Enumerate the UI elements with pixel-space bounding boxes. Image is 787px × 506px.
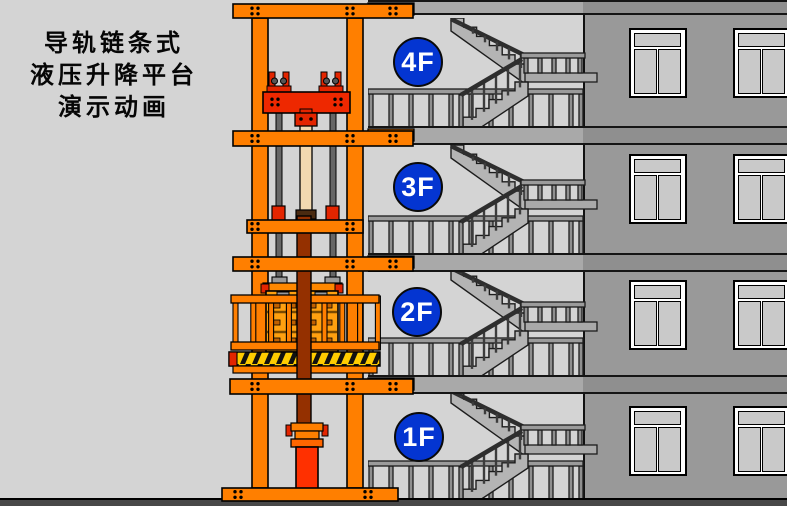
bolt — [256, 222, 259, 225]
window — [733, 28, 787, 98]
landing-railing — [521, 180, 585, 185]
sprocket-wheel — [272, 78, 278, 84]
cargo-latch — [307, 320, 316, 325]
mast-right-column — [347, 18, 363, 488]
stair-end-post — [459, 344, 463, 377]
window-pane-left — [738, 427, 761, 472]
cargo-clamp — [261, 284, 269, 293]
cylinder-flange — [291, 439, 323, 447]
carriage-assembly — [263, 72, 350, 126]
chain-anchor — [272, 206, 285, 222]
corridor-railing — [368, 461, 583, 466]
bolt — [333, 98, 336, 101]
sprocket-bracket — [321, 72, 327, 87]
window-transom — [634, 285, 681, 299]
mast-left-column — [252, 18, 268, 488]
bolt — [250, 265, 253, 268]
stair-landing — [525, 200, 597, 209]
landing-railing-post — [524, 430, 528, 445]
window-transom — [738, 411, 785, 425]
bolt — [345, 134, 348, 137]
cargo-latch — [271, 338, 280, 343]
landing-railing-post — [552, 307, 556, 322]
chain-block — [272, 277, 287, 289]
bolt — [250, 260, 253, 263]
cargo-latch — [287, 338, 296, 343]
corridor-railing — [368, 89, 583, 94]
corridor-railing-post — [569, 343, 573, 377]
cylinder-pin — [322, 425, 328, 436]
window-transom — [634, 159, 681, 173]
floor-slab-inner — [368, 377, 583, 392]
corridor-railing-post — [409, 343, 413, 377]
bolt — [270, 98, 273, 101]
corridor-railing-post — [529, 343, 533, 377]
chain-left — [276, 86, 282, 292]
bolt — [256, 134, 259, 137]
window-pane-left — [738, 175, 761, 220]
bolt — [256, 382, 259, 385]
platform-underside — [233, 366, 377, 373]
corridor-railing-post — [579, 94, 583, 128]
stair-landing — [525, 73, 597, 82]
bolt — [351, 260, 354, 263]
platform-assembly — [229, 277, 380, 373]
bolt — [256, 260, 259, 263]
landing-railing — [521, 53, 585, 58]
piston-rod — [300, 118, 312, 214]
carriage-beam — [263, 92, 350, 113]
corridor-railing-post — [429, 466, 433, 500]
window-pane-right — [762, 301, 785, 346]
floor-label-text: 1F — [402, 422, 436, 453]
bolt — [250, 222, 253, 225]
landing-railing-post — [566, 185, 570, 200]
cage-post — [251, 296, 256, 350]
window-pane-left — [738, 301, 761, 346]
chain-right — [330, 86, 336, 292]
window-pane-left — [634, 427, 657, 472]
cage-post — [304, 296, 309, 350]
cage-post — [269, 296, 274, 350]
bolt — [309, 117, 313, 121]
corridor-railing — [368, 338, 583, 343]
landing-railing-post — [566, 58, 570, 73]
cargo-bracket — [277, 292, 289, 300]
window-pane-left — [738, 49, 761, 94]
floor-slab-wall-band — [583, 377, 787, 392]
landing-railing-post — [524, 185, 528, 200]
window-pane-right — [658, 49, 681, 94]
bolt — [250, 7, 253, 10]
corridor-railing-post — [369, 466, 373, 500]
bolt — [345, 7, 348, 10]
floor-label-4f: 4F — [393, 37, 443, 87]
floor-label-text: 4F — [401, 47, 435, 78]
corridor-railing-post — [529, 94, 533, 128]
bolt — [345, 222, 348, 225]
bolt — [250, 134, 253, 137]
window — [629, 154, 687, 224]
bolt — [256, 388, 259, 391]
corridor-railing-post — [409, 221, 413, 255]
sprocket-bracket — [283, 72, 289, 87]
corridor-railing-post — [389, 94, 393, 128]
floor-slab-inner — [368, 128, 583, 143]
landing-railing-post — [552, 58, 556, 73]
bolt — [239, 490, 242, 493]
floor-slab — [368, 126, 787, 145]
floor-label-1f: 1F — [394, 412, 444, 462]
bolt — [351, 382, 354, 385]
cargo-latch — [323, 338, 332, 343]
title-line: 液压升降平台 — [8, 60, 220, 92]
sprocket-bracket — [269, 72, 275, 87]
landing-railing-post — [552, 430, 556, 445]
window-pane-right — [658, 427, 681, 472]
window-pane-right — [762, 175, 785, 220]
bolt — [351, 134, 354, 137]
corridor-railing-post — [369, 343, 373, 377]
cargo-clamp — [335, 284, 343, 293]
bolt — [339, 103, 342, 106]
cargo-latch — [271, 303, 280, 308]
hazard-stripe-deck — [229, 352, 380, 366]
cargo-latch — [307, 303, 316, 308]
cage-top-rail — [231, 295, 379, 303]
rod-clevis — [295, 113, 317, 126]
cylinder-base — [286, 423, 328, 492]
window-transom — [634, 33, 681, 47]
bolt — [345, 382, 348, 385]
deck-end-cap — [229, 352, 237, 366]
bolt — [351, 388, 354, 391]
floor-slab-wall-band — [583, 255, 787, 270]
corridor-railing-post — [409, 94, 413, 128]
cylinder-barrel — [297, 216, 311, 428]
corridor-railing-post — [449, 466, 453, 500]
bolt — [333, 103, 336, 106]
bolt — [256, 265, 259, 268]
cargo-latch — [307, 338, 316, 343]
corridor-railing-post — [389, 221, 393, 255]
cylinder-pin — [286, 425, 292, 436]
floor-label-2f: 2F — [392, 287, 442, 337]
window-pane-right — [658, 301, 681, 346]
carriage-anchor-beam — [247, 220, 363, 233]
corridor-railing-post — [579, 221, 583, 255]
window-transom — [738, 159, 785, 173]
animation-canvas: 导轨链条式 液压升降平台 演示动画 4F3F2F1F — [0, 0, 787, 506]
sprocket-wheel — [333, 78, 339, 84]
corridor-railing — [368, 216, 583, 221]
cylinder-body — [296, 447, 318, 492]
window-pane-left — [634, 49, 657, 94]
corridor-railing-post — [549, 94, 553, 128]
corridor-railing-post — [409, 466, 413, 500]
bolt — [351, 265, 354, 268]
cargo-load — [266, 291, 338, 352]
window — [733, 154, 787, 224]
window — [733, 406, 787, 476]
rod-cap — [300, 109, 312, 114]
window-transom — [738, 33, 785, 47]
cargo-latch — [287, 303, 296, 308]
landing-railing-post — [538, 307, 542, 322]
landing-railing-post — [524, 307, 528, 322]
window — [629, 280, 687, 350]
sprocket-bracket — [335, 72, 341, 87]
stair-landing — [525, 322, 597, 331]
landing-railing-post — [538, 58, 542, 73]
bolt — [345, 388, 348, 391]
window-pane-right — [762, 427, 785, 472]
stair-end-post — [459, 467, 463, 500]
landing-railing-post — [578, 430, 582, 445]
corridor-railing-post — [529, 221, 533, 255]
landing-railing — [521, 425, 585, 430]
corridor-railing-post — [369, 221, 373, 255]
bolt — [256, 140, 259, 143]
corridor-railing-post — [389, 343, 393, 377]
landing-railing-post — [538, 185, 542, 200]
rod-collar — [296, 210, 316, 219]
window-pane-right — [762, 49, 785, 94]
bolt — [250, 382, 253, 385]
landing-railing-post — [552, 185, 556, 200]
corridor-railing-post — [579, 343, 583, 377]
bolt — [256, 12, 259, 15]
sprocket-base — [319, 86, 343, 92]
stair-end-post — [459, 222, 463, 255]
floor-slab-wall-band — [583, 128, 787, 143]
bolt — [233, 490, 236, 493]
bolt — [299, 117, 303, 121]
bolt — [363, 490, 366, 493]
bolt — [351, 12, 354, 15]
cargo-latch — [271, 320, 280, 325]
bolt — [351, 7, 354, 10]
corridor-railing-post — [449, 94, 453, 128]
corridor-railing-post — [569, 466, 573, 500]
cage-bottom-rail — [231, 342, 379, 350]
floor-label-text: 3F — [401, 172, 435, 203]
bolt — [256, 228, 259, 231]
landing-railing-post — [538, 430, 542, 445]
ground — [0, 498, 787, 506]
sprocket-wheel — [281, 78, 287, 84]
bolt — [256, 7, 259, 10]
landing-railing-post — [566, 430, 570, 445]
corridor-railing-post — [389, 466, 393, 500]
bolt — [351, 228, 354, 231]
bolt — [270, 103, 273, 106]
cage-post — [233, 296, 238, 350]
window-pane-left — [634, 175, 657, 220]
stair-end-post — [459, 95, 463, 128]
cylinder-clamp — [291, 423, 323, 431]
corridor-railing-post — [449, 221, 453, 255]
bolt — [351, 222, 354, 225]
corridor-railing-post — [549, 343, 553, 377]
cargo-top-bar — [263, 283, 342, 291]
bolt — [250, 228, 253, 231]
cage-post — [358, 296, 363, 350]
chain-block — [325, 277, 340, 289]
bolt — [339, 98, 342, 101]
cage-post — [286, 296, 291, 350]
bolt — [345, 228, 348, 231]
cage-post — [322, 296, 327, 350]
corridor-railing-post — [569, 94, 573, 128]
floor-label-text: 2F — [400, 297, 434, 328]
title-line: 导轨链条式 — [8, 28, 220, 60]
cage-post — [340, 296, 345, 350]
sprocket-wheel — [324, 78, 330, 84]
title-text: 导轨链条式 液压升降平台 演示动画 — [8, 28, 220, 124]
corridor-railing-post — [529, 466, 533, 500]
window-pane-left — [634, 301, 657, 346]
corridor-railing-post — [429, 343, 433, 377]
bolt — [250, 12, 253, 15]
cargo-latch — [287, 320, 296, 325]
cylinder-neck — [295, 431, 319, 439]
floor-slab — [368, 253, 787, 272]
floor-label-3f: 3F — [393, 162, 443, 212]
title-line: 演示动画 — [8, 92, 220, 124]
bolt — [250, 140, 253, 143]
cargo-latch — [323, 303, 332, 308]
corridor-railing-post — [429, 94, 433, 128]
bolt — [250, 388, 253, 391]
corridor-railing-post — [569, 221, 573, 255]
window-pane-right — [658, 175, 681, 220]
floor-slab — [368, 0, 787, 15]
window-transom — [634, 411, 681, 425]
stair-landing — [525, 445, 597, 454]
corridor-railing-post — [369, 94, 373, 128]
window — [733, 280, 787, 350]
bolt — [345, 12, 348, 15]
landing-railing-post — [578, 185, 582, 200]
window-transom — [738, 285, 785, 299]
landing-railing-post — [524, 58, 528, 73]
landing-railing-post — [578, 58, 582, 73]
bolt — [351, 140, 354, 143]
landing-railing — [521, 302, 585, 307]
bolt — [345, 260, 348, 263]
corridor-railing-post — [429, 221, 433, 255]
floor-slab-wall-band — [583, 2, 787, 13]
landing-railing-post — [578, 307, 582, 322]
window — [629, 28, 687, 98]
floor-slab-inner — [368, 2, 583, 13]
floor-slab — [368, 375, 787, 394]
corridor-railing-post — [579, 466, 583, 500]
corridor-railing-post — [449, 343, 453, 377]
corridor-railing-post — [549, 466, 553, 500]
sprocket-base — [267, 86, 291, 92]
bolt — [345, 140, 348, 143]
bolt — [276, 98, 279, 101]
chain-anchor — [326, 206, 339, 222]
window — [629, 406, 687, 476]
landing-railing-post — [566, 307, 570, 322]
cargo-latch — [323, 320, 332, 325]
corridor-railing-post — [549, 221, 553, 255]
bolt — [276, 103, 279, 106]
cargo-bracket — [315, 292, 327, 300]
bolt — [345, 265, 348, 268]
floor-slab-inner — [368, 255, 583, 270]
